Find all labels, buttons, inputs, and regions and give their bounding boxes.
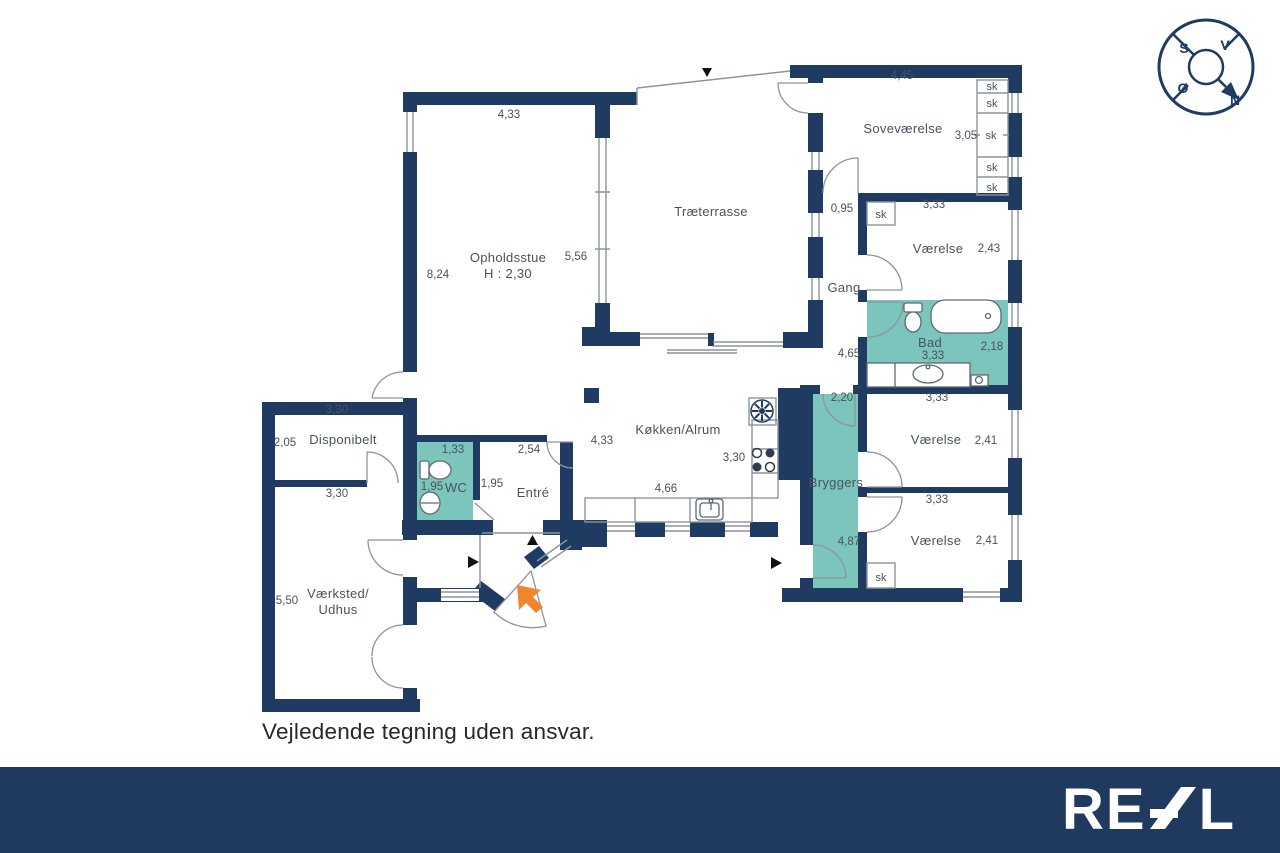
sovevaerelse-door-arc <box>823 158 858 193</box>
room-label-disponibelt: Disponibelt <box>309 432 377 447</box>
wc-toilet-tank <box>420 461 429 479</box>
stove-icons <box>751 400 775 472</box>
west-exterior-door-arc <box>372 372 403 398</box>
dim-wc-depth: 1,95 <box>421 481 443 493</box>
room-label-vaerelse-e: Værelse <box>911 432 962 447</box>
dim-vaerelse-se-width: 3,33 <box>926 494 948 506</box>
wood-stove-icon <box>751 400 773 422</box>
entrance-markers <box>468 68 782 569</box>
stove-burner <box>766 463 775 472</box>
dim-gang-length: 4,65 <box>838 348 860 360</box>
dim-disponibelt-depth: 2,05 <box>274 437 296 449</box>
dim-vaerksted-width: 3,30 <box>326 488 348 500</box>
logo-letter-e: E <box>1106 781 1147 839</box>
dim-bryggers-width: 2,20 <box>831 392 853 404</box>
room-label-vaerksted-1: Værksted/ <box>307 586 369 601</box>
room-label-bryggers: Bryggers <box>809 475 864 490</box>
dim-entre-side: 1,95 <box>481 478 503 490</box>
dim-opholdsstue-east: 5,56 <box>565 251 587 263</box>
room-label-opholdsstue: Opholdsstue <box>470 250 546 265</box>
vaerelse-e-door-arc <box>867 452 902 487</box>
dim-vaerelse-e-width: 3,33 <box>926 392 948 404</box>
dim-koekken-west: 4,33 <box>591 435 613 447</box>
room-label-vaerksted-2: Udhus <box>318 602 357 617</box>
porch-entry-marker-up <box>527 535 538 545</box>
vaerksted-door-arc <box>368 540 403 575</box>
dim-entre-width: 2,54 <box>518 444 541 456</box>
room-label-sovevaerelse: Soveværelse <box>863 121 942 136</box>
dim-bryggers-length: 4,87 <box>838 536 860 548</box>
compass-letter-s: S <box>1179 40 1188 56</box>
walls <box>262 65 1022 712</box>
closet-label: sk <box>876 572 888 584</box>
compass-letter-o: Ø <box>1178 80 1189 96</box>
double-door-arc-upper <box>372 625 403 656</box>
logo-letter-l: L <box>1199 781 1236 839</box>
stove-burner <box>753 449 762 458</box>
dim-wc-width: 1,33 <box>442 444 464 456</box>
stove-burner <box>766 449 775 458</box>
dim-koekken-south: 4,66 <box>655 483 677 495</box>
room-height-opholdsstue: H : 2,30 <box>484 266 532 281</box>
vaerelse-ne-door-arc <box>867 255 902 290</box>
real-logo: R E L <box>1062 781 1236 839</box>
closet-label: sk <box>987 81 999 93</box>
disclaimer-text: Vejledende tegning uden ansvar. <box>262 719 595 745</box>
room-label-traeterrasse: Træterrasse <box>674 204 748 219</box>
disponibelt-door-arc <box>367 452 398 483</box>
closet-label: sk <box>987 162 999 174</box>
compass-rose: S V Ø N <box>1159 20 1253 114</box>
bad-toilet-bowl <box>905 312 921 332</box>
closet-label: sk <box>876 209 888 221</box>
room-label-vaerelse-ne: Værelse <box>913 241 964 256</box>
closet-label: sk <box>986 130 998 142</box>
terrace-door-arc <box>778 83 808 113</box>
logo-letter-r: R <box>1062 781 1106 839</box>
bryggers-entry-marker <box>771 557 782 569</box>
wc-door-leaf <box>475 503 494 520</box>
dim-disponibelt-width: 3,30 <box>326 404 348 416</box>
room-label-wc: WC <box>445 480 467 495</box>
bad-toilet-tank <box>904 303 922 312</box>
room-label-bad: Bad <box>918 335 942 350</box>
dim-sovevaerelse-width: 4,45 <box>891 70 913 82</box>
vaerelse-se-door-arc <box>867 497 902 532</box>
closet-label: sk <box>987 98 999 110</box>
floorplan-drawing: Opholdsstue H : 2,30 Træterrasse Sovevær… <box>0 0 1280 770</box>
terrace-entry-marker <box>702 68 712 77</box>
porch-entry-marker-right <box>468 556 479 568</box>
dim-vaerelse-se-depth: 2,41 <box>976 535 998 547</box>
dim-bad-width: 3,33 <box>922 350 944 362</box>
room-label-koekken: Køkken/Alrum <box>635 422 720 437</box>
logo-letter-a <box>1150 787 1196 829</box>
dim-vaerelse-e-depth: 2,41 <box>975 435 997 447</box>
stove-burner <box>753 463 762 472</box>
dim-opholdsstue-depth: 8,24 <box>427 269 450 281</box>
compass-letter-v: V <box>1220 37 1230 53</box>
dim-vaerelse-ne-width: 3,33 <box>923 199 945 211</box>
compass-letter-n: N <box>1230 92 1240 108</box>
bryggers-room-fill <box>813 394 858 588</box>
dim-gang-width: 0,95 <box>831 203 853 215</box>
closet-label: sk <box>987 182 999 194</box>
bathtub-drain <box>986 314 991 319</box>
footer-bar: R E L <box>0 767 1280 853</box>
dim-vaerelse-ne-depth: 2,43 <box>978 243 1000 255</box>
dim-opholdsstue-width: 4,33 <box>498 109 520 121</box>
wc-toilet-bowl <box>429 461 451 479</box>
double-door-arc-lower <box>372 657 403 688</box>
dim-bad-depth: 2,18 <box>981 341 1003 353</box>
dim-vaerksted-depth: 5,50 <box>276 595 298 607</box>
floorplan-page: Opholdsstue H : 2,30 Træterrasse Sovevær… <box>0 0 1280 853</box>
room-label-gang: Gang <box>827 280 860 295</box>
dim-koekken-east: 3,30 <box>723 452 745 464</box>
dim-sovevaerelse-depth: 3,05 <box>955 130 977 142</box>
room-label-entre: Entré <box>517 485 550 500</box>
room-label-vaerelse-se: Værelse <box>911 533 962 548</box>
